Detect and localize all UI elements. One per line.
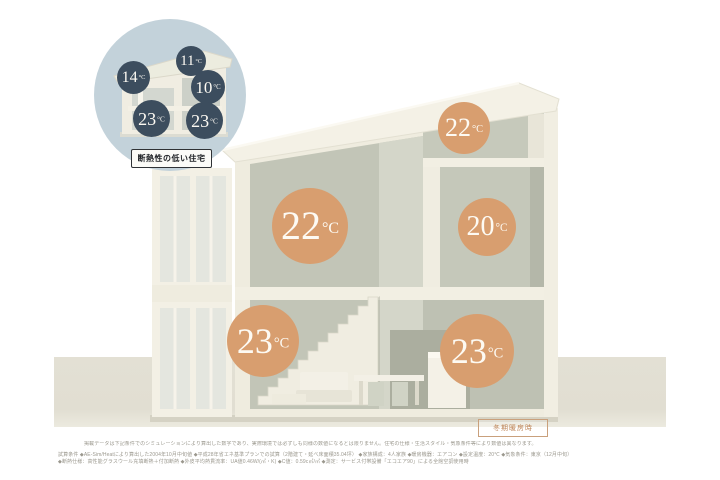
temp-value: 11 <box>180 54 194 69</box>
chair <box>368 382 384 406</box>
temp-value: 23 <box>138 110 156 128</box>
temp-value: 22 <box>445 115 471 141</box>
dining-table-top <box>354 375 424 381</box>
temp-unit: °C <box>488 346 503 360</box>
inset-caption: 断熱性の低い住宅 <box>131 149 212 168</box>
low-table <box>272 394 306 404</box>
disclaimer-line-2: 試算条件 ◆AE-Sim/Heatにより算出した2004年10月中旬値 ◆平成2… <box>58 452 674 460</box>
temp-value: 23 <box>451 333 487 369</box>
disclaimer-line-3: ◆断熱仕様：高性能グラスウール充填断熱＋付加断熱 ◆外皮平均熱貫流率：UA値0.… <box>58 459 674 467</box>
temp-value: 14 <box>122 70 138 86</box>
second-floor-slab <box>235 287 544 300</box>
condition-badge: 冬期暖房時 <box>478 419 548 437</box>
temp-1f-dining: 23°C <box>440 314 514 388</box>
temp-value: 20 <box>467 213 495 241</box>
temp-value: 23 <box>191 112 209 130</box>
temp-2f-room: 20°C <box>458 198 516 256</box>
right-wall <box>544 108 558 417</box>
temperature-comparison-diagram: 22°C 22°C 20°C 23°C 23°C 11°C 14°C 10°C … <box>0 0 720 480</box>
inset-temp-2f-right: 10°C <box>191 70 225 104</box>
table-leg <box>415 381 419 405</box>
disclaimer-notes: 掲載データは下記条件でのシミュレーションにより算出した数字であり、実際環境では必… <box>58 441 674 467</box>
temp-value: 10 <box>195 79 212 96</box>
loft-ceiling <box>423 158 544 167</box>
temp-2f-living: 22°C <box>272 188 348 264</box>
floor-slab-edge <box>235 409 544 417</box>
loft-left-pillar <box>423 167 440 287</box>
temp-unit: °C <box>157 116 165 123</box>
inset-temp-1f-left: 23°C <box>133 100 170 137</box>
chair <box>392 382 408 406</box>
temp-unit: °C <box>139 75 146 81</box>
loft-right-shade <box>530 167 544 287</box>
inset-temp-1f-right: 23°C <box>186 102 223 139</box>
temp-unit: °C <box>196 59 202 65</box>
disclaimer-line-1: 掲載データは下記条件でのシミュレーションにより算出した数字であり、実際環境では必… <box>58 441 674 449</box>
table-leg <box>359 381 363 405</box>
temp-1f-living: 23°C <box>227 305 299 377</box>
temp-unit: °C <box>210 118 218 125</box>
temp-value: 22 <box>281 206 321 246</box>
temp-value: 23 <box>237 323 273 359</box>
temp-unit: °C <box>496 223 508 234</box>
temp-unit: °C <box>213 85 220 92</box>
temp-attic: 22°C <box>438 102 490 154</box>
attic-right-edge <box>528 114 544 158</box>
temp-unit: °C <box>322 221 339 237</box>
temp-unit: °C <box>274 336 289 350</box>
bay-floor-band <box>152 285 232 302</box>
temp-unit: °C <box>472 125 483 135</box>
inset-temp-2f-left: 14°C <box>117 61 150 94</box>
